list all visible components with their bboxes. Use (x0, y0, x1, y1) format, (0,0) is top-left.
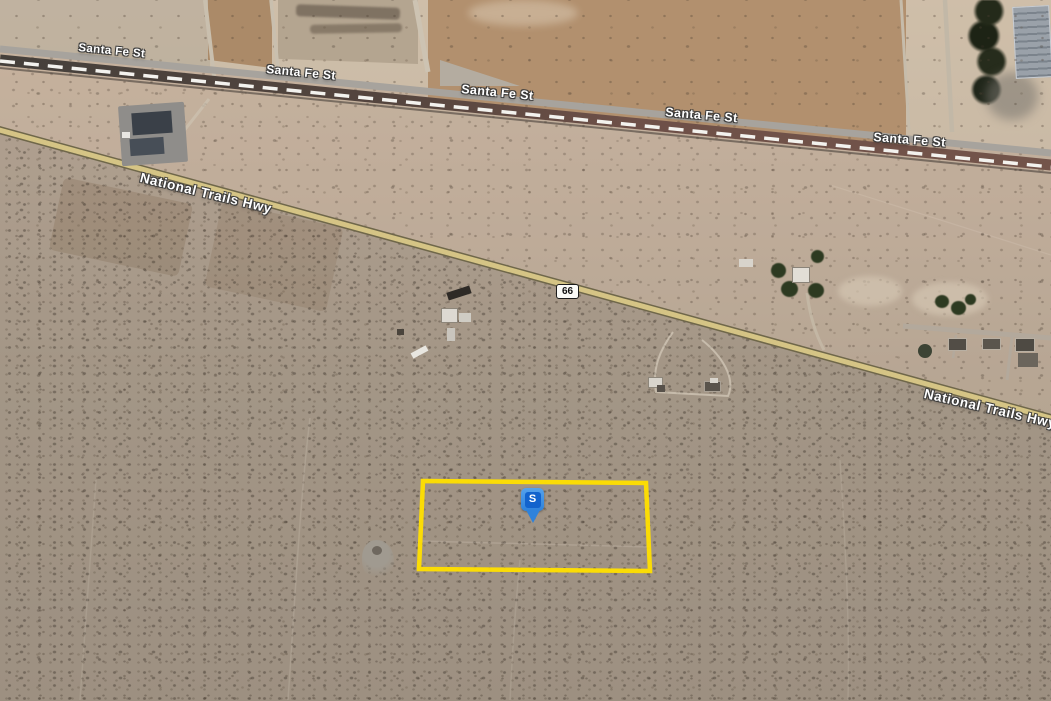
tree (808, 283, 824, 298)
faint-trail (510, 560, 520, 700)
industrial-building (129, 137, 164, 156)
faint-trail (830, 185, 1051, 255)
outbuilding (1018, 353, 1038, 367)
faint-trail (840, 460, 848, 700)
dirt-road (205, 0, 214, 76)
dirt-road (271, 0, 278, 70)
driveway (183, 99, 209, 132)
residential-road (1007, 337, 1012, 380)
small-structure (447, 328, 455, 341)
cleared-lot (912, 282, 988, 316)
house (792, 267, 810, 283)
white-roof-building (441, 308, 458, 323)
tree (811, 250, 824, 263)
residential-road (903, 326, 1051, 338)
house (1015, 338, 1035, 352)
driveway (807, 293, 824, 350)
tree (918, 344, 932, 358)
shed (397, 329, 404, 335)
road-apron (440, 60, 520, 86)
route-66-shield-label: 66 (562, 287, 573, 297)
industrial-building (131, 111, 172, 136)
house (982, 338, 1001, 350)
satellite-map[interactable]: Santa Fe St Santa Fe St Santa Fe St Sant… (0, 0, 1051, 701)
shed (657, 385, 665, 392)
debris-patch (362, 540, 394, 580)
cleared-lot (838, 276, 902, 306)
small-structure (739, 259, 753, 267)
location-pin-tail (526, 510, 540, 523)
tree (965, 294, 976, 305)
tree (935, 295, 949, 308)
route-66-shield-icon: 66 (556, 284, 579, 299)
faint-trail (80, 480, 96, 700)
tree (781, 281, 798, 297)
house (948, 338, 967, 351)
location-pin-icon[interactable]: S (521, 488, 544, 511)
faint-trail (420, 541, 650, 547)
national-trails-hwy-road (0, 128, 1051, 420)
small-structure (122, 132, 130, 138)
faint-trail (288, 418, 310, 700)
small-structure (710, 378, 718, 383)
tree (951, 301, 966, 315)
field-boundary-road (901, 0, 909, 130)
location-pin-label: S (525, 492, 541, 508)
dirt-road (945, 0, 952, 132)
dirt-road (415, 0, 428, 72)
white-roof-building (459, 313, 471, 322)
tree (771, 263, 786, 278)
